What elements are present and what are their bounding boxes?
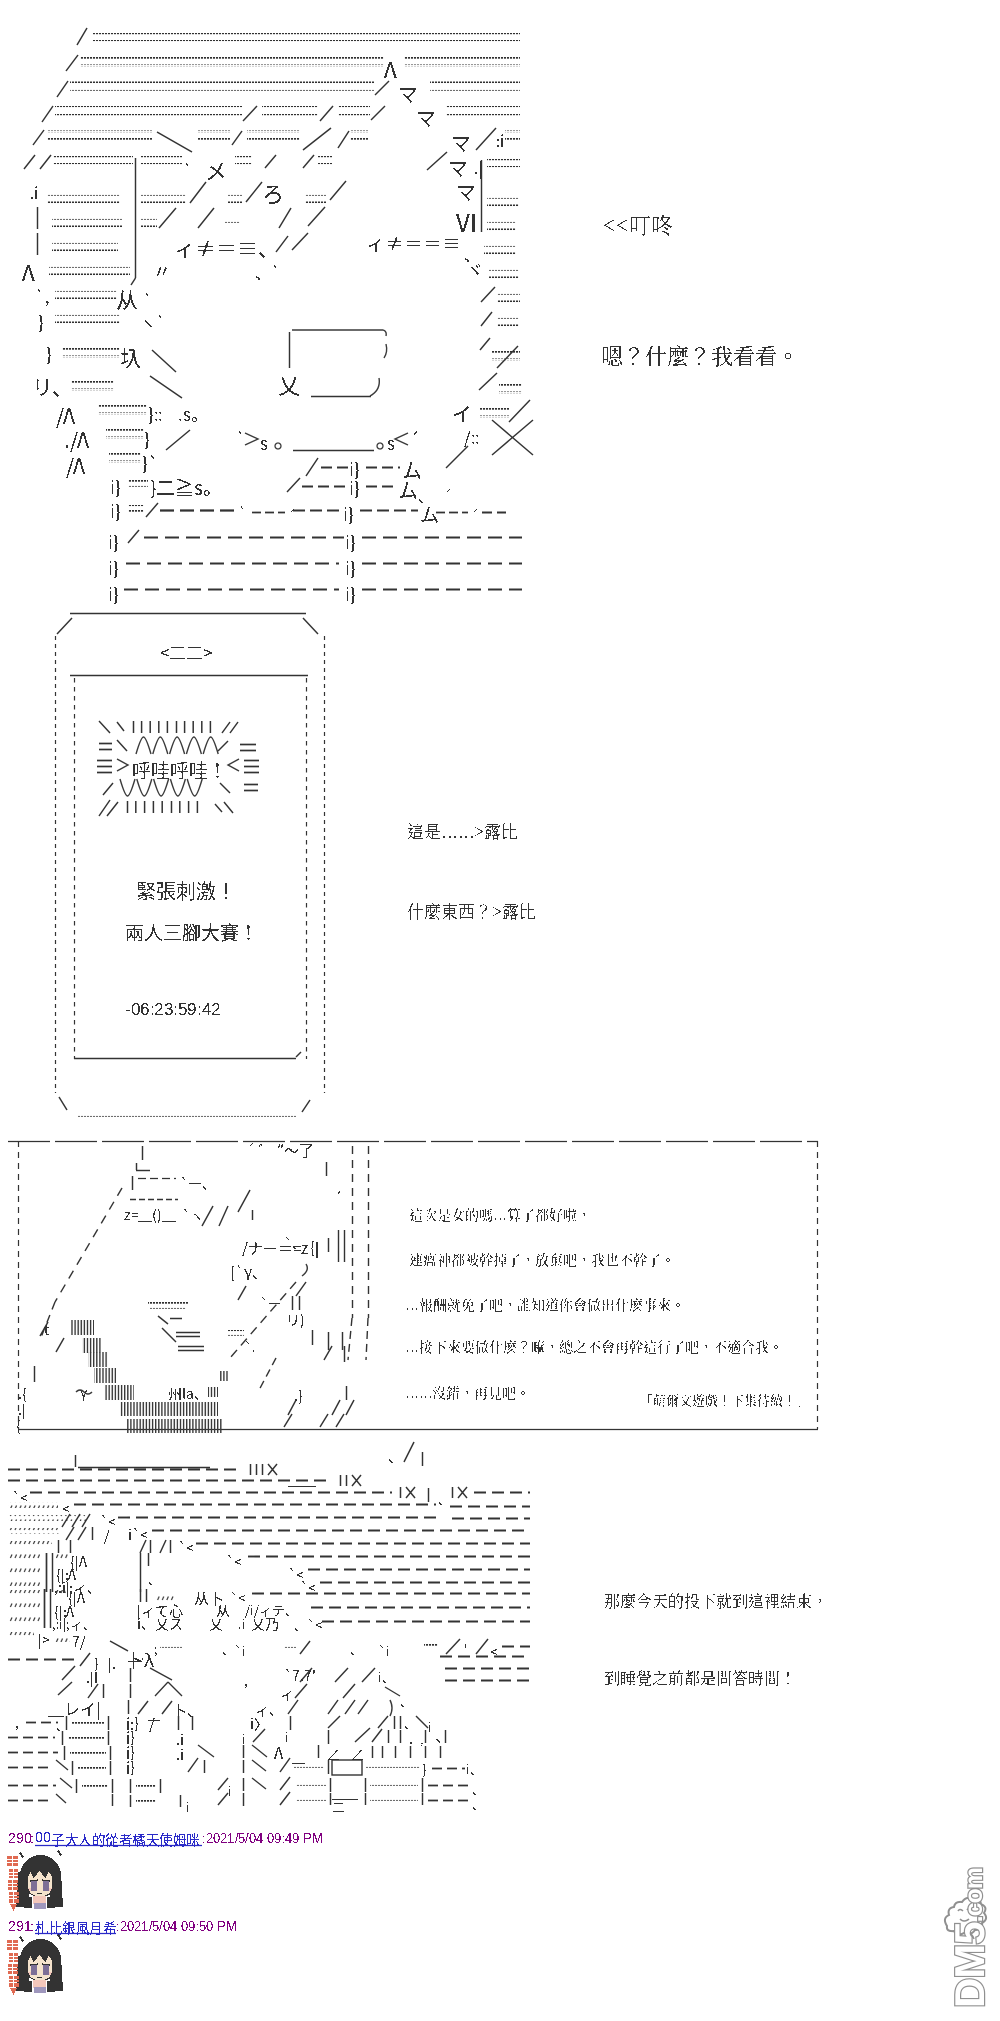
svg-text:DM5.com: DM5.com bbox=[946, 1868, 993, 2008]
